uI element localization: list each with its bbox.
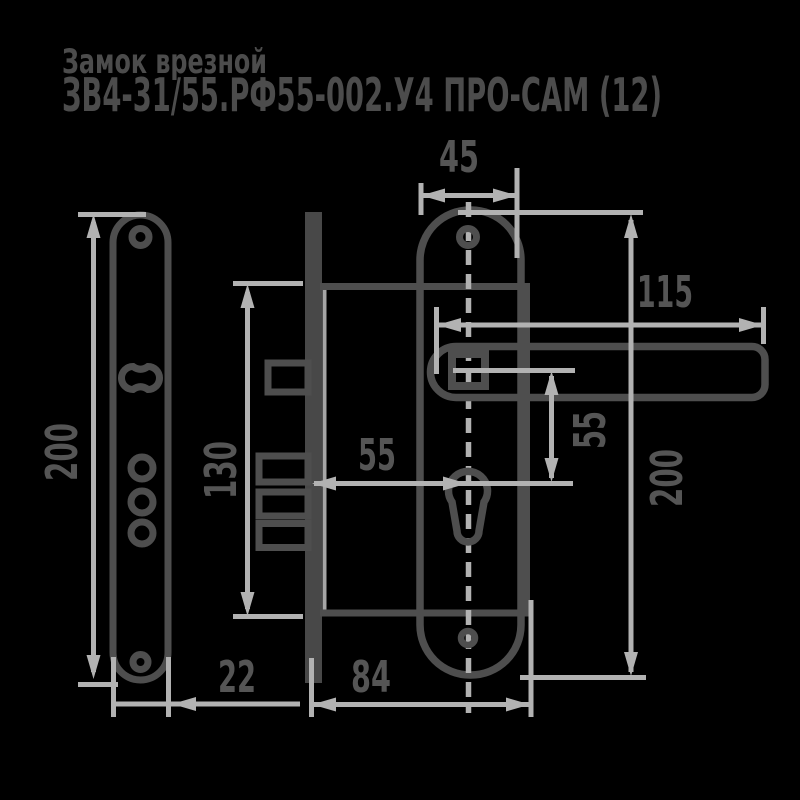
arrowhead-left xyxy=(172,697,196,711)
deadbolt-segment-2 xyxy=(259,492,308,516)
interior-plate-top-screw-hole xyxy=(132,229,149,246)
interior-plate-hole-2 xyxy=(131,491,153,513)
arrowhead-up xyxy=(545,371,559,395)
interior-plate-hole-3 xyxy=(131,522,153,544)
arrowhead-right xyxy=(493,189,517,203)
arrowhead-down xyxy=(87,655,101,679)
title-line-2: ЗВ4-31/55.РФ55-002.У4 ПРО-САМ (12) xyxy=(62,68,662,122)
arrowhead-right xyxy=(739,318,763,332)
dim-label-backset: 55 xyxy=(358,430,396,481)
deadbolt-segment-3 xyxy=(259,524,308,548)
dim-label-right-plate-width: 45 xyxy=(439,132,479,183)
dim-label-left-plate-width: 22 xyxy=(218,652,256,703)
latch-bolt xyxy=(268,363,308,392)
deadbolt-segment-1 xyxy=(259,456,308,482)
drawing-canvas: Замок врезной ЗВ4-31/55.РФ55-002.У4 ПРО-… xyxy=(0,0,800,800)
interior-plate-spindle-hole xyxy=(121,366,159,389)
arrowhead-up xyxy=(241,284,255,308)
dim-label-body-depth: 84 xyxy=(351,652,391,703)
arrowhead-down xyxy=(545,458,559,482)
arrowhead-right xyxy=(506,698,530,712)
lock-technical-drawing: Замок врезной ЗВ4-31/55.РФ55-002.У4 ПРО-… xyxy=(0,0,800,800)
exterior-plate-view xyxy=(420,202,765,713)
dim-label-handle-to-cylinder: 55 xyxy=(565,411,616,449)
arrowhead-left xyxy=(437,318,461,332)
interior-plate-hole-1 xyxy=(131,457,153,479)
dim-backset: 55 xyxy=(312,430,573,491)
arrowhead-up xyxy=(624,214,638,238)
arrowhead-down xyxy=(241,592,255,616)
dim-body-height: 130 xyxy=(196,284,303,617)
interior-plate-outline xyxy=(113,215,168,680)
interior-plate-view xyxy=(113,215,168,680)
arrowhead-left xyxy=(312,698,336,712)
dim-left-plate-height: 200 xyxy=(37,214,146,685)
arrowhead-left xyxy=(421,189,445,203)
dim-label-right-plate-height: 200 xyxy=(642,449,693,507)
dim-label-left-plate-height: 200 xyxy=(37,423,88,481)
dim-label-handle-length: 115 xyxy=(637,267,693,318)
interior-plate-bottom-screw-hole xyxy=(133,655,148,670)
dim-left-plate-width: 22 xyxy=(114,652,301,717)
faceplate xyxy=(305,212,322,683)
dim-label-body-height: 130 xyxy=(196,441,247,499)
arrowhead-down xyxy=(624,652,638,676)
arrowhead-up xyxy=(87,214,101,238)
